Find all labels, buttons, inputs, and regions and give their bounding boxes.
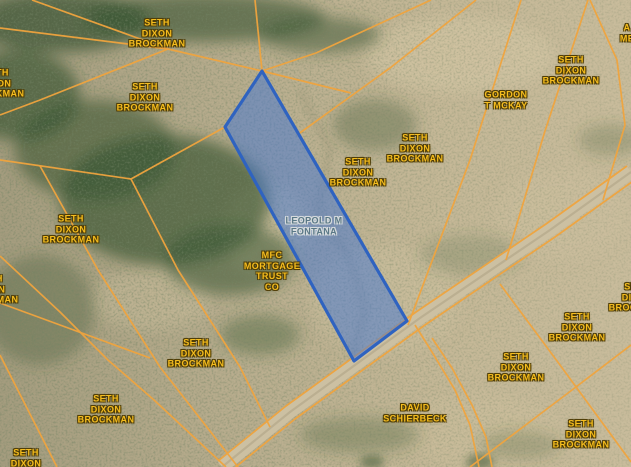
map-viewport[interactable]: SETHDIXONBROCKMANSETHDIXONBROCKMANSETHDI… [0,0,631,467]
satellite-basemap [0,0,631,467]
